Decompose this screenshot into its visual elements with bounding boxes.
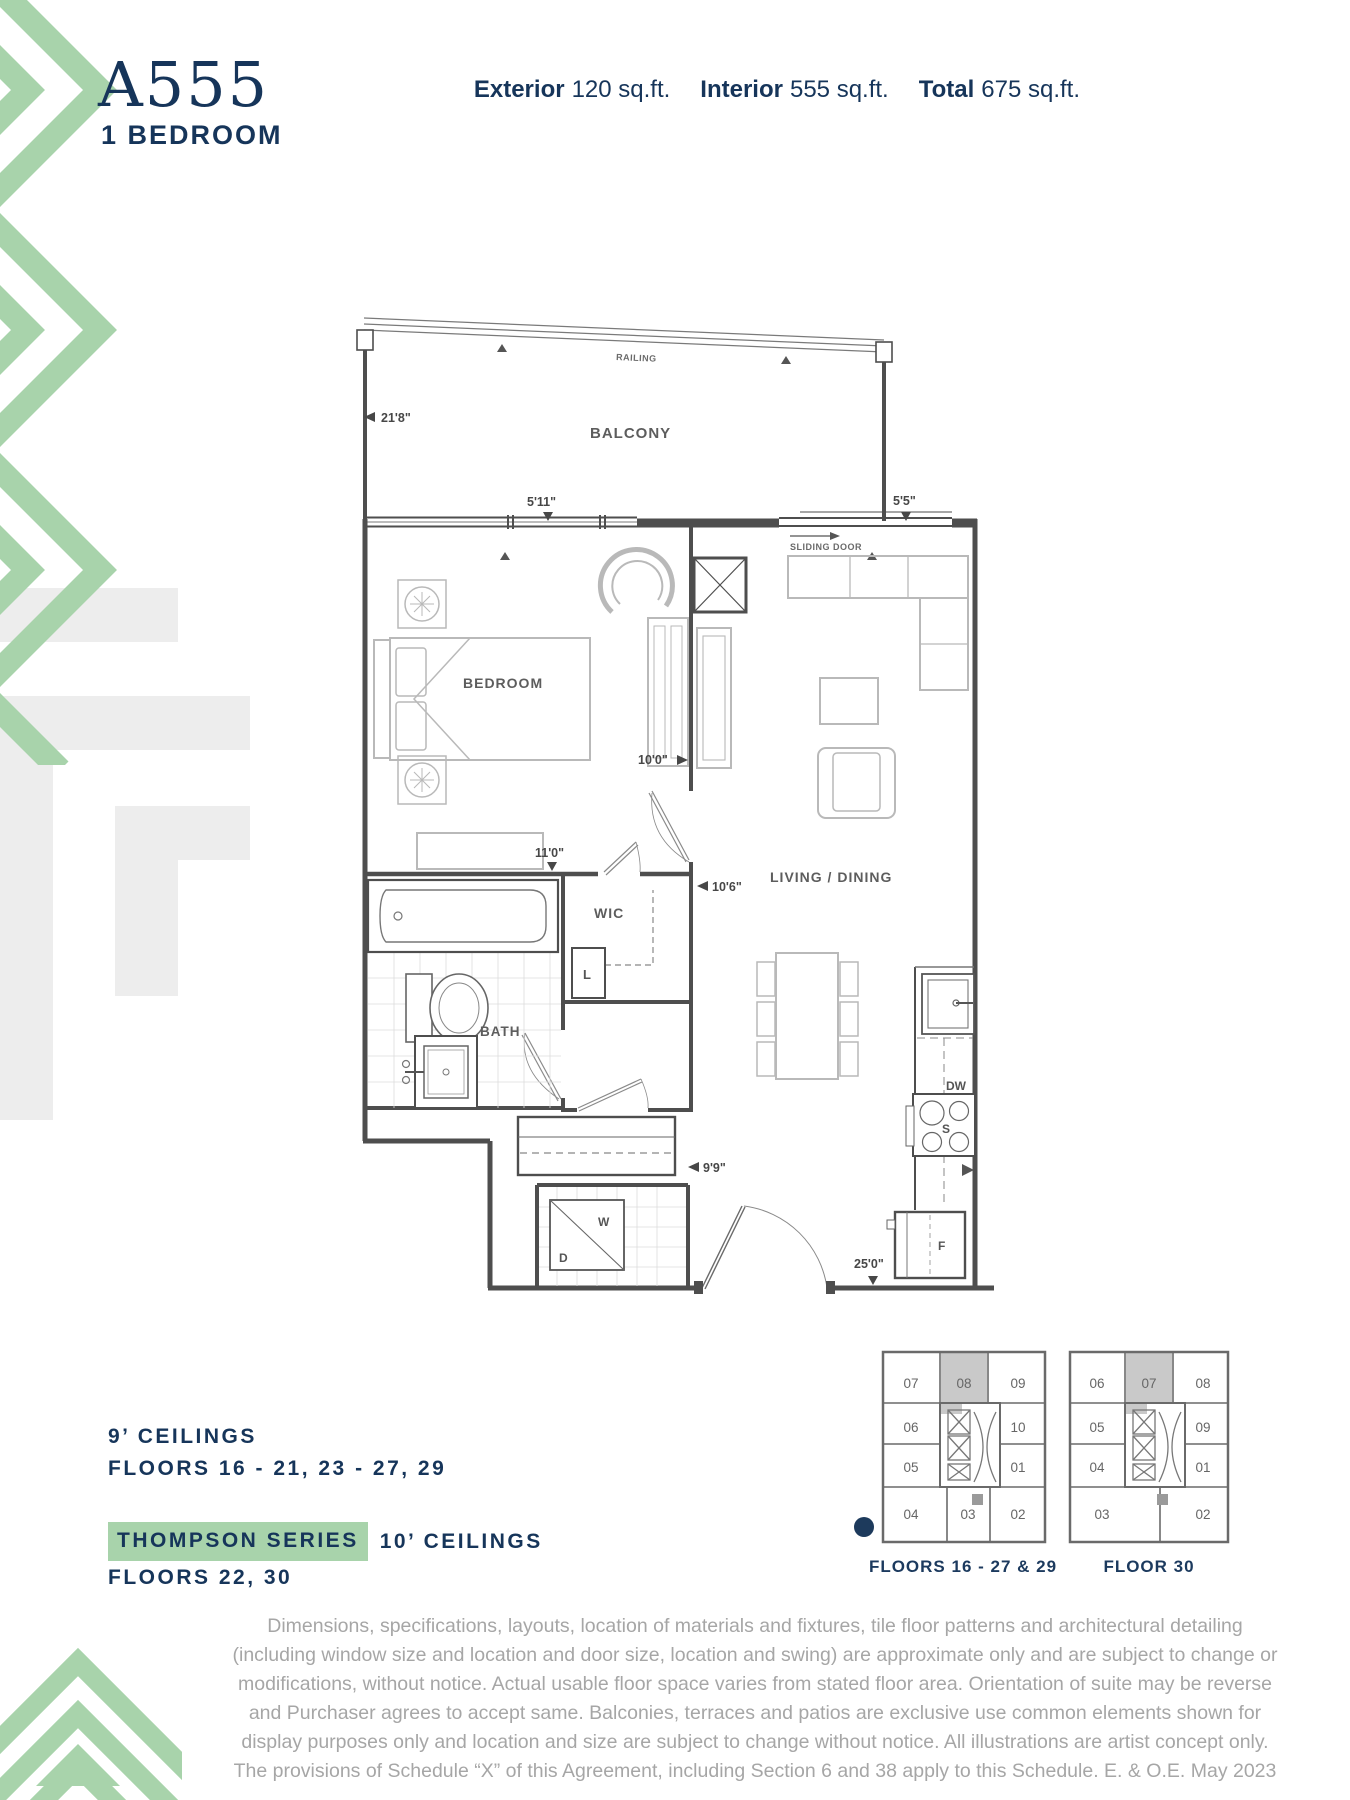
fridge bbox=[887, 1212, 965, 1278]
wic-door bbox=[604, 842, 640, 875]
bath-door bbox=[522, 1033, 561, 1101]
dining-chair bbox=[840, 1002, 858, 1036]
ceiling-info: 9’ CEILINGS FLOORS 16 - 21, 23 - 27, 29 … bbox=[108, 1422, 543, 1593]
bath-vanity bbox=[403, 1036, 478, 1108]
dim-bedroom-width: 11'0" bbox=[535, 846, 564, 860]
ceiling-standard-height: 9’ CEILINGS bbox=[108, 1422, 543, 1452]
nightstand bbox=[398, 756, 446, 804]
plan-code: A555 bbox=[98, 48, 269, 121]
key-plan-cell: 07 bbox=[903, 1376, 918, 1391]
key-plan-left: 07 08 09 06 10 05 01 04 03 02 FLOORS 16 … bbox=[854, 1352, 1057, 1576]
disclaimer-line: Dimensions, specifications, layouts, loc… bbox=[115, 1612, 1350, 1641]
laundry-closet bbox=[539, 1187, 686, 1286]
stat-exterior: Exterior120 sq.ft. bbox=[474, 76, 670, 104]
key-plan-lobby-marker bbox=[972, 1494, 983, 1505]
dining-chair bbox=[757, 962, 775, 996]
stat-interior: Interior555 sq.ft. bbox=[700, 76, 888, 104]
kitchen bbox=[887, 967, 975, 1278]
stove-label: S bbox=[942, 1122, 950, 1136]
dim-arrow-left-icon bbox=[688, 1162, 699, 1172]
dim-arrow-down-icon bbox=[868, 1276, 878, 1285]
ceiling-standard-floors: FLOORS 16 - 21, 23 - 27, 29 bbox=[108, 1454, 543, 1484]
dim-bedroom-window: 5'11" bbox=[527, 495, 556, 509]
armchair bbox=[818, 748, 895, 818]
key-plan-cell: 03 bbox=[1094, 1507, 1109, 1522]
bedroom-furniture bbox=[374, 550, 688, 869]
dim-unit-depth: 25'0" bbox=[854, 1257, 884, 1271]
bed bbox=[390, 638, 590, 760]
key-plan-cell: 04 bbox=[1089, 1460, 1105, 1475]
dining-table bbox=[776, 953, 838, 1079]
key-plan-right: 06 07 08 05 09 04 01 03 02 FLOOR 30 bbox=[1070, 1352, 1228, 1576]
stove bbox=[906, 1094, 975, 1156]
dim-bedroom-depth: 10'0" bbox=[638, 753, 668, 767]
disclaimer-line: (including window size and location and … bbox=[115, 1641, 1350, 1670]
room-label-bath: BATH bbox=[480, 1024, 521, 1039]
dim-living-window: 5'5" bbox=[893, 494, 916, 508]
balcony-post-right bbox=[876, 342, 892, 362]
gray-deco-shapes bbox=[0, 588, 250, 1120]
sliding-door-arrowhead-icon bbox=[830, 532, 840, 540]
dining-chair bbox=[757, 1002, 775, 1036]
bedroom-closet bbox=[648, 618, 688, 766]
key-plan-cell: 10 bbox=[1010, 1420, 1025, 1435]
key-plan-cell: 05 bbox=[903, 1460, 918, 1475]
dining-set bbox=[757, 953, 858, 1079]
key-plan-core bbox=[948, 1410, 996, 1482]
legal-disclaimer: Dimensions, specifications, layouts, loc… bbox=[115, 1612, 1350, 1786]
key-plan-caption: FLOOR 30 bbox=[1103, 1557, 1194, 1576]
balcony-post-left bbox=[357, 330, 373, 350]
dryer-label: D bbox=[559, 1251, 568, 1265]
linen-label: L bbox=[583, 967, 591, 982]
stat-label: Total bbox=[919, 76, 975, 103]
stat-total: Total675 sq.ft. bbox=[919, 76, 1080, 104]
railing-label: RAILING bbox=[616, 352, 657, 364]
north-marker-icon bbox=[854, 1517, 874, 1537]
balcony-railing bbox=[364, 318, 884, 352]
bedroom-door bbox=[649, 791, 689, 862]
dim-arrow-down-icon bbox=[547, 862, 557, 871]
key-plan-cell: 04 bbox=[903, 1507, 919, 1522]
sliding-door bbox=[779, 512, 952, 526]
series-name-badge: THOMPSON SERIES bbox=[108, 1522, 368, 1561]
sofa bbox=[788, 556, 968, 690]
dining-chair bbox=[840, 962, 858, 996]
key-plan-cell: 06 bbox=[1089, 1376, 1104, 1391]
key-plan-cell: 01 bbox=[1010, 1460, 1025, 1475]
stat-label: Exterior bbox=[474, 76, 565, 103]
bedroom-bench bbox=[417, 833, 543, 869]
sliding-door-label: SLIDING DOOR bbox=[790, 542, 862, 552]
pillow bbox=[396, 702, 426, 750]
room-label-wic: WIC bbox=[594, 905, 624, 921]
key-plan-cell: 06 bbox=[903, 1420, 918, 1435]
key-plan-cell: 01 bbox=[1195, 1460, 1210, 1475]
key-plan-lobby-marker bbox=[1157, 1494, 1168, 1505]
dim-hall-width: 9'9" bbox=[703, 1161, 726, 1175]
disclaimer-line: modifications, without notice. Actual us… bbox=[115, 1670, 1350, 1699]
room-label-living-dining: LIVING / DINING bbox=[770, 869, 892, 885]
key-plan-cell: 09 bbox=[1195, 1420, 1210, 1435]
key-plan-cell: 08 bbox=[956, 1376, 971, 1391]
kitchen-sink bbox=[922, 974, 974, 1034]
window-marker-icon bbox=[500, 552, 510, 560]
key-plan-cell: 09 bbox=[1010, 1376, 1025, 1391]
key-plan-cell: 03 bbox=[960, 1507, 975, 1522]
dim-balcony-width: 21'8" bbox=[381, 411, 411, 425]
stat-value: 675 sq.ft. bbox=[981, 76, 1080, 103]
entry-closet bbox=[518, 1117, 675, 1175]
nightstand bbox=[398, 580, 446, 628]
structural-column bbox=[694, 558, 746, 612]
key-plan-caption: FLOORS 16 - 27 & 29 bbox=[869, 1557, 1057, 1576]
entry-door bbox=[694, 1206, 835, 1294]
room-label-balcony: BALCONY bbox=[590, 425, 671, 442]
plan-type: 1 BEDROOM bbox=[101, 120, 283, 151]
dim-arrow-left-icon bbox=[697, 881, 708, 891]
coffee-table bbox=[820, 678, 878, 724]
stat-label: Interior bbox=[700, 76, 783, 103]
bed-headboard bbox=[374, 640, 390, 758]
series-ceiling-height: 10’ CEILINGS bbox=[380, 1527, 543, 1557]
pillow bbox=[396, 648, 426, 696]
key-plan-cell: 02 bbox=[1195, 1507, 1210, 1522]
bedroom-window bbox=[363, 515, 637, 529]
key-plan-cell: 08 bbox=[1195, 1376, 1210, 1391]
dishwasher-label: DW bbox=[946, 1079, 967, 1093]
disclaimer-line: display purposes only and location and s… bbox=[115, 1728, 1350, 1757]
dining-chair bbox=[757, 1042, 775, 1076]
accent-chair bbox=[600, 550, 672, 612]
series-floors: FLOORS 22, 30 bbox=[108, 1563, 543, 1593]
room-label-bedroom: BEDROOM bbox=[463, 675, 543, 691]
dim-arrow-right-icon bbox=[962, 1164, 974, 1176]
key-plan-cell: 02 bbox=[1010, 1507, 1025, 1522]
key-plan-cell: 07 bbox=[1141, 1376, 1156, 1391]
fridge-label: F bbox=[938, 1239, 945, 1253]
washer-label: W bbox=[598, 1215, 610, 1229]
railing-marker-icon bbox=[497, 344, 507, 352]
dim-living-width: 10'6" bbox=[712, 880, 742, 894]
key-plan-cell: 05 bbox=[1089, 1420, 1104, 1435]
bathtub bbox=[368, 880, 558, 952]
brand-pattern-top-left bbox=[0, 0, 100, 770]
disclaimer-line: and Purchaser agrees to accept same. Bal… bbox=[115, 1699, 1350, 1728]
blanket-fold bbox=[414, 638, 470, 760]
disclaimer-line: The provisions of Schedule “X” of this A… bbox=[115, 1757, 1350, 1786]
dining-chair bbox=[840, 1042, 858, 1076]
area-stats: Exterior120 sq.ft. Interior555 sq.ft. To… bbox=[480, 76, 1080, 104]
vestibule-door bbox=[578, 1079, 648, 1111]
railing-marker-icon bbox=[781, 356, 791, 364]
stat-value: 555 sq.ft. bbox=[790, 76, 889, 103]
key-plan-core bbox=[1133, 1410, 1181, 1482]
stat-value: 120 sq.ft. bbox=[572, 76, 671, 103]
floor-plan: RAILING BALCONY 21'8" 5'11" 5'5" SLIDING… bbox=[357, 318, 994, 1294]
toilet bbox=[406, 974, 488, 1042]
gray-corner-inner bbox=[115, 806, 250, 996]
dim-arrow-down-icon bbox=[901, 512, 911, 521]
floorplan-page: RAILING BALCONY 21'8" 5'11" 5'5" SLIDING… bbox=[0, 0, 1350, 1800]
tv-console bbox=[697, 628, 731, 768]
